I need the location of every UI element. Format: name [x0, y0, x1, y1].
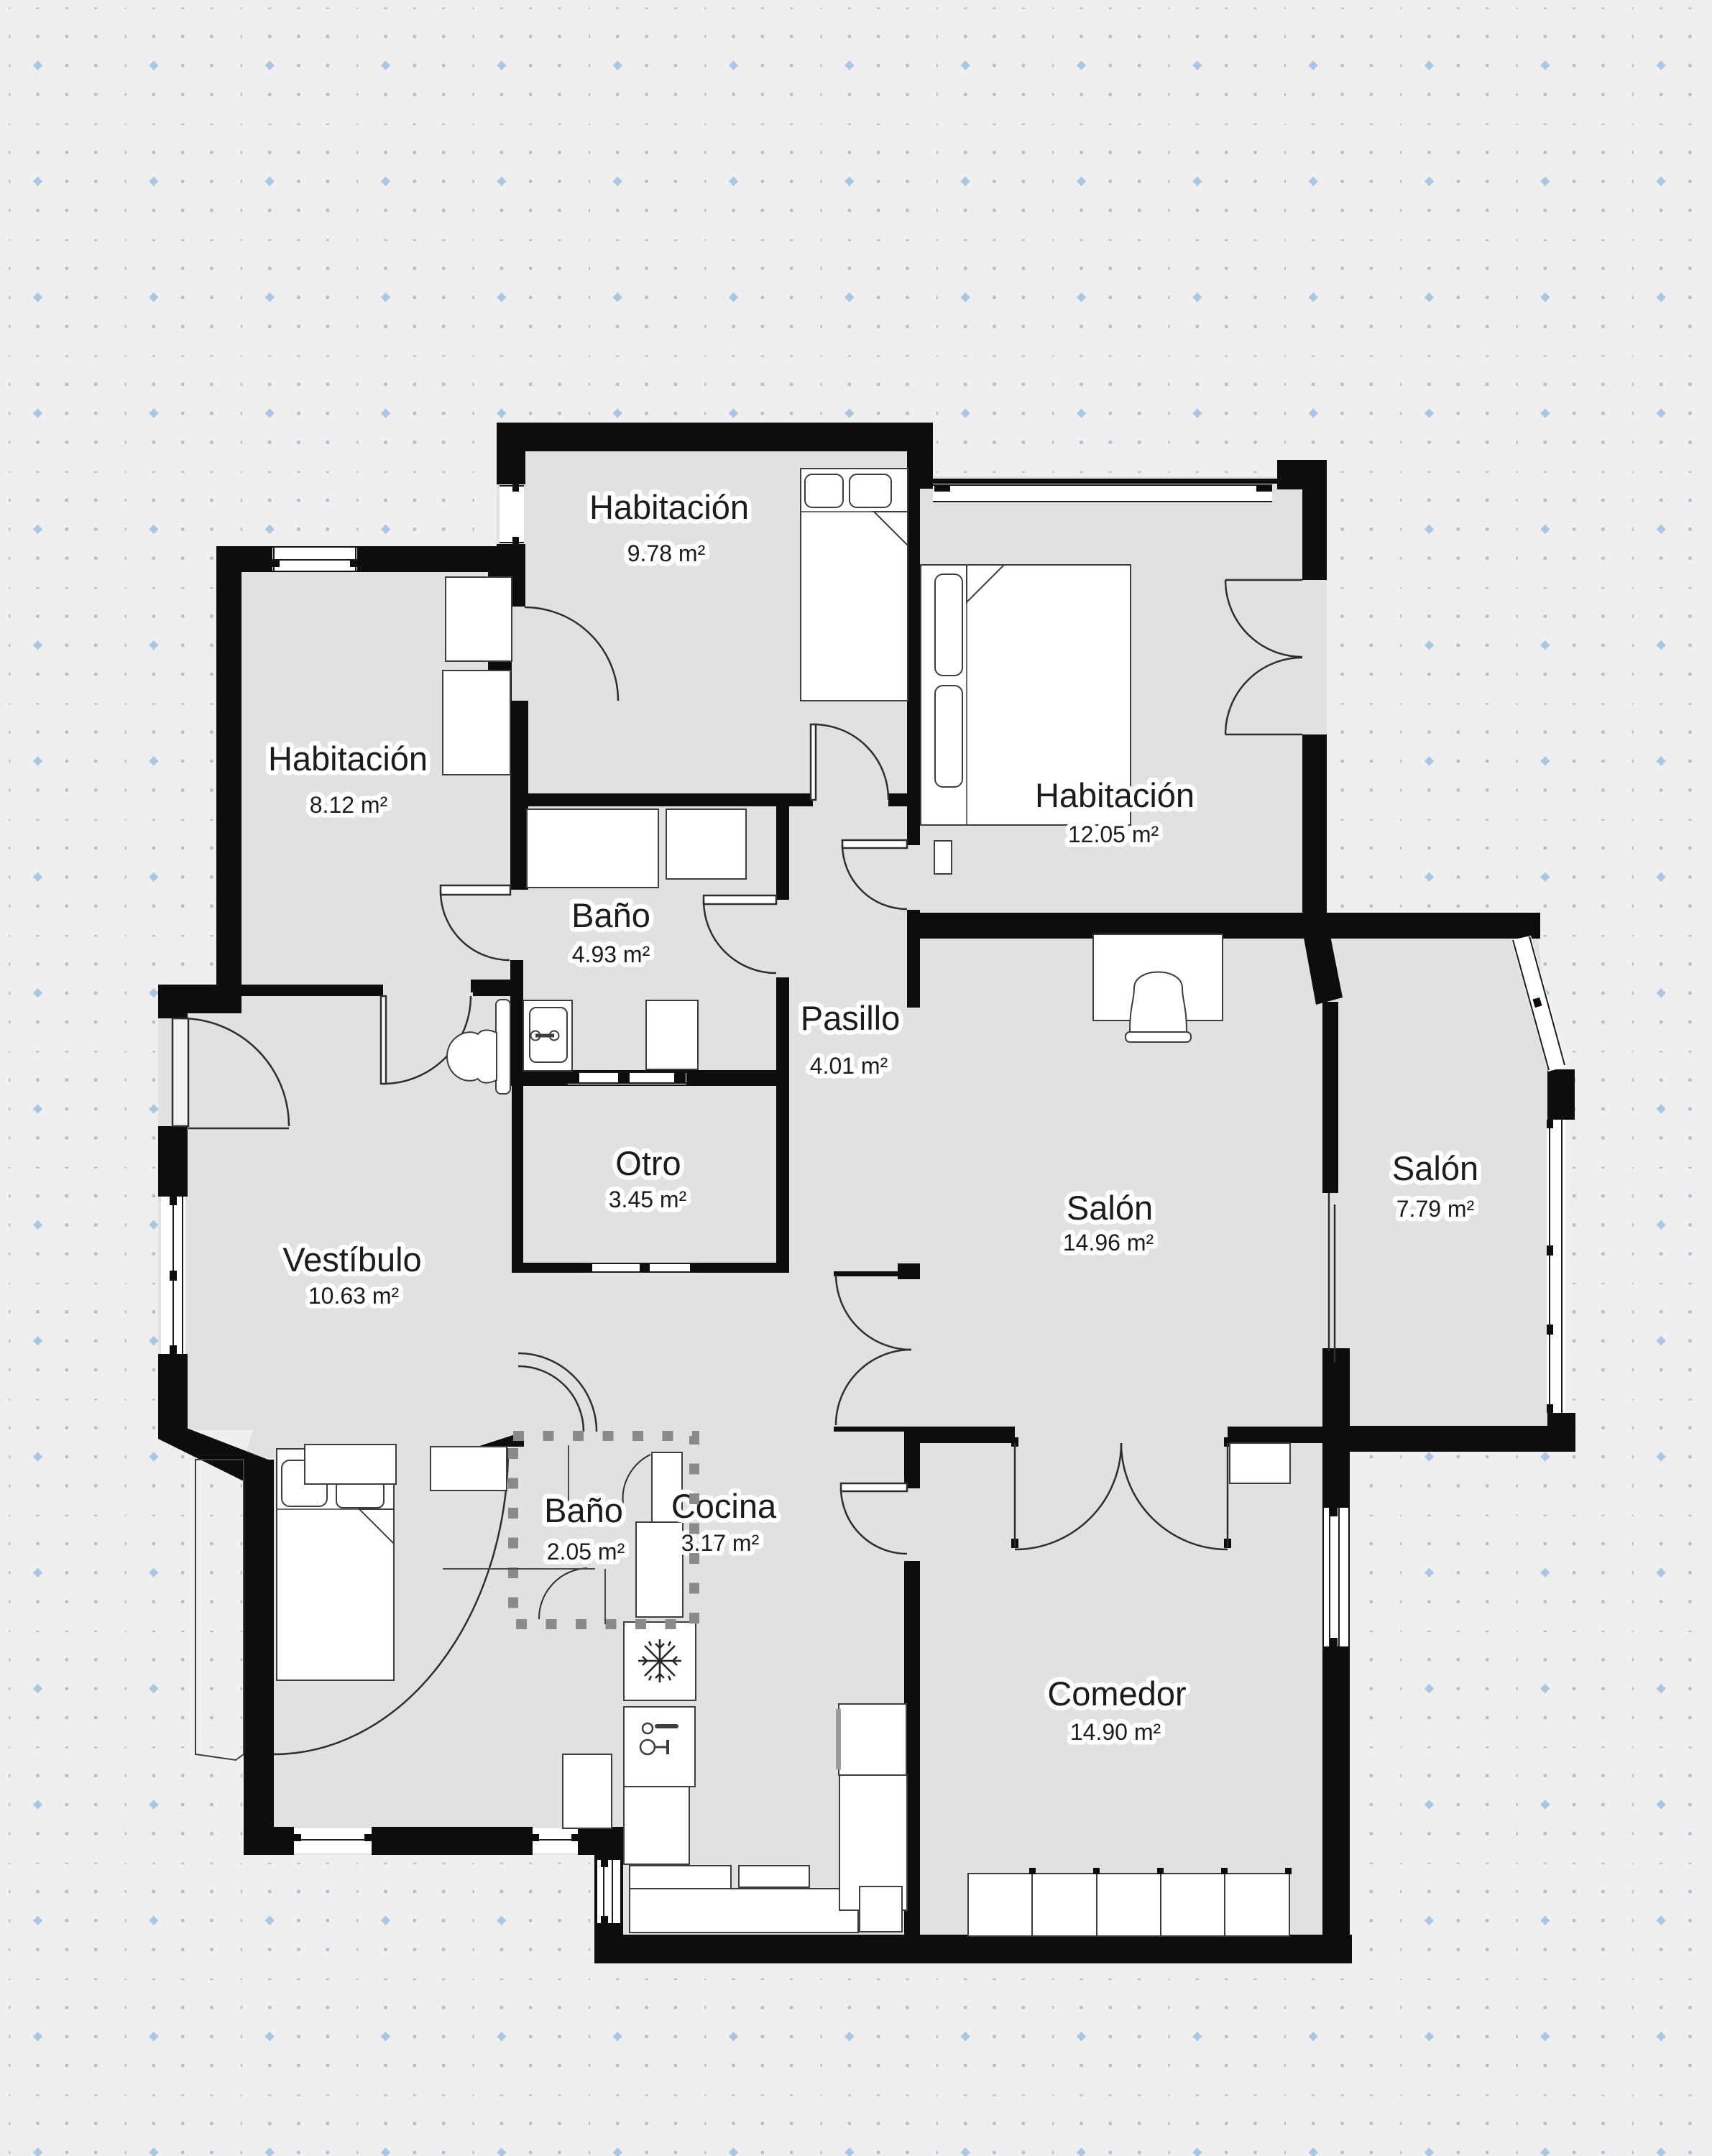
svg-text:Pasillo: Pasillo — [801, 999, 900, 1037]
svg-text:10.63 m²: 10.63 m² — [308, 1283, 400, 1309]
svg-text:12.05 m²: 12.05 m² — [1068, 821, 1159, 847]
svg-text:Otro: Otro — [615, 1144, 681, 1182]
svg-text:7.79 m²: 7.79 m² — [1396, 1196, 1475, 1222]
svg-text:Habitación: Habitación — [589, 488, 749, 526]
svg-text:2.05 m²: 2.05 m² — [547, 1539, 625, 1565]
svg-text:8.12 m²: 8.12 m² — [310, 792, 388, 818]
svg-text:4.93 m²: 4.93 m² — [572, 941, 650, 967]
svg-text:Salón: Salón — [1067, 1189, 1153, 1227]
svg-text:Salón: Salón — [1392, 1149, 1478, 1187]
svg-text:14.90 m²: 14.90 m² — [1070, 1719, 1161, 1745]
svg-text:Habitación: Habitación — [1035, 776, 1195, 814]
svg-text:Comedor: Comedor — [1047, 1674, 1186, 1713]
svg-text:Baño: Baño — [571, 896, 650, 934]
svg-text:Vestíbulo: Vestíbulo — [282, 1240, 421, 1279]
svg-text:3.45 m²: 3.45 m² — [609, 1187, 687, 1212]
svg-text:Cocina: Cocina — [671, 1487, 777, 1525]
svg-text:14.96 m²: 14.96 m² — [1063, 1230, 1154, 1256]
svg-text:9.78 m²: 9.78 m² — [627, 540, 706, 566]
svg-text:4.01 m²: 4.01 m² — [810, 1053, 888, 1079]
svg-text:Baño: Baño — [544, 1491, 623, 1529]
svg-text:Habitación: Habitación — [268, 740, 428, 778]
